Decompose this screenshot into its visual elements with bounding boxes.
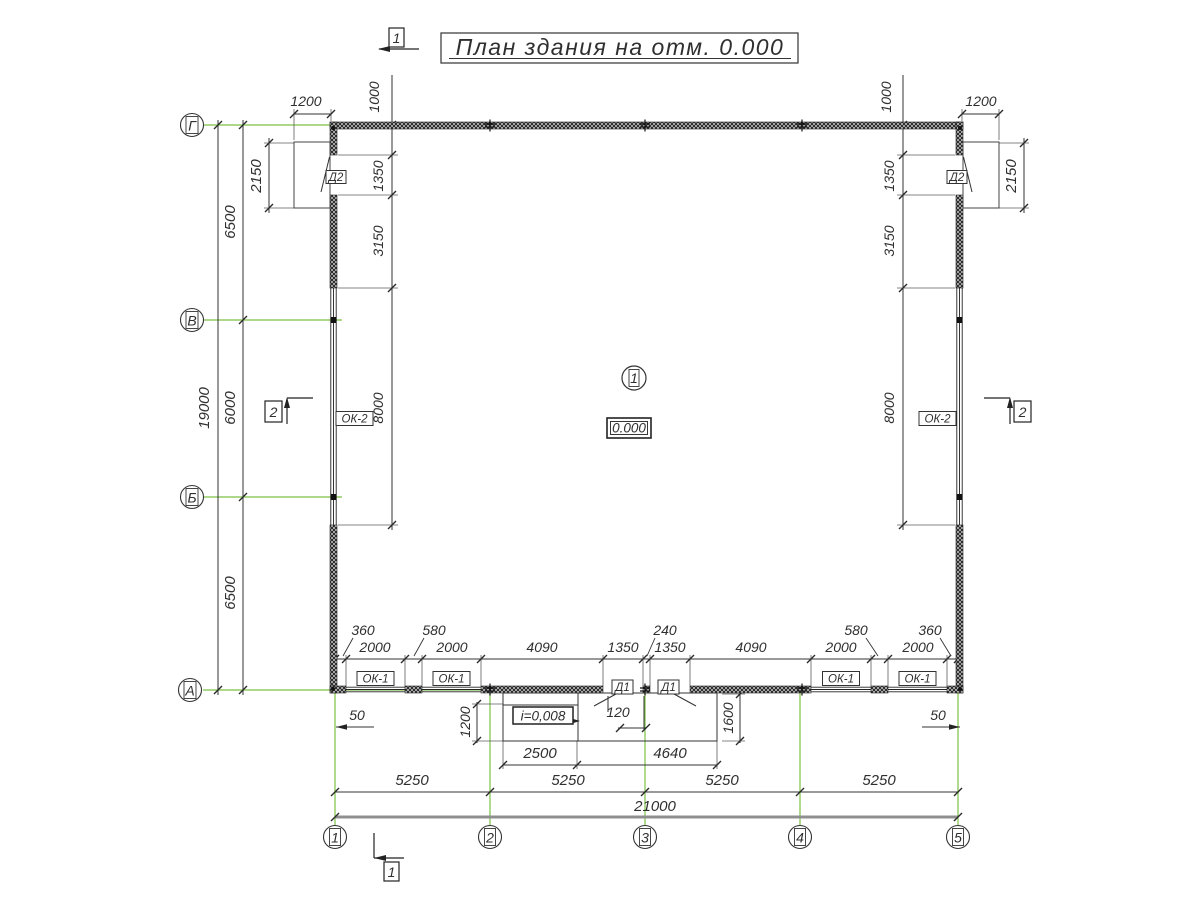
section-marks: 1 1 2 2 xyxy=(265,28,1031,881)
axis-grid-lines xyxy=(203,125,958,825)
slope-tag: i=0,008 xyxy=(513,707,573,724)
dim-b0: 360 xyxy=(351,622,375,638)
dim-span-vb: 6000 xyxy=(222,391,239,425)
dim-b7: 1350 xyxy=(654,639,685,655)
axis-bubble-a: А xyxy=(179,679,202,702)
dim-overall-width: 21000 xyxy=(633,798,676,815)
dim-off-50-r: 50 xyxy=(930,707,946,723)
door-d1-right-leader xyxy=(674,694,696,706)
dim-b1: 2000 xyxy=(358,639,390,655)
dim-s34: 5250 xyxy=(705,772,739,789)
fixation-crosses xyxy=(485,120,807,696)
dim-s45: 5250 xyxy=(862,772,896,789)
axis-bubble-3: 3 xyxy=(634,826,657,849)
ok1-label-4: ОК-1 xyxy=(899,672,936,686)
dim-wl-3150: 3150 xyxy=(370,225,386,256)
elevation-value: 0.000 xyxy=(612,421,646,436)
ok1-text-4: ОК-1 xyxy=(905,674,931,686)
axis-5-label: 5 xyxy=(954,830,962,846)
dim-b6: 240 xyxy=(652,622,677,638)
dim-b10: 580 xyxy=(844,622,868,638)
section-2-left-label: 2 xyxy=(269,404,278,420)
dim-ramp-2500: 2500 xyxy=(522,745,557,762)
axis-2-label: 2 xyxy=(485,830,494,846)
dim-s12: 5250 xyxy=(395,772,429,789)
dim-wr-1350: 1350 xyxy=(881,160,897,191)
dim-porch-l-w: 1200 xyxy=(290,93,321,109)
section-1-bottom-label: 1 xyxy=(388,864,396,880)
room-tag: 1 xyxy=(622,366,646,390)
axis-bubbles-bottom: 1 2 3 4 5 xyxy=(324,826,970,849)
ok2-text-right: ОК-2 xyxy=(925,414,952,426)
ok1-label-2: ОК-1 xyxy=(433,672,470,686)
ok1-text-2: ОК-1 xyxy=(439,674,465,686)
ok1-label-3: ОК-1 xyxy=(823,672,860,686)
elevation-tag: 0.000 xyxy=(607,418,651,438)
dim-b12: 360 xyxy=(918,622,942,638)
ok2-label-right: ОК-2 xyxy=(919,412,956,426)
d2-label-right: Д2 xyxy=(947,171,967,185)
extension-lines xyxy=(264,109,1029,769)
wall-top xyxy=(330,122,963,129)
dim-wl-1350: 1350 xyxy=(370,160,386,191)
section-1-bottom: 1 xyxy=(374,833,404,881)
walls xyxy=(330,122,963,693)
axis-bubble-5: 5 xyxy=(947,826,970,849)
ok1-label-1: ОК-1 xyxy=(357,672,394,686)
dim-ramp-4640: 4640 xyxy=(653,745,687,762)
axis-v-label: В xyxy=(187,313,196,329)
dim-span-gv: 6500 xyxy=(222,205,239,239)
axis-b-label: Б xyxy=(187,490,196,506)
axis-wall-marks xyxy=(331,126,963,691)
dim-off-50-l: 50 xyxy=(349,707,365,723)
section-2-left: 2 xyxy=(265,397,313,424)
dim-porch-r-w: 1200 xyxy=(965,93,996,109)
ramp-dimensions: 50 50 1200 1600 120 2500 4640 xyxy=(349,702,946,762)
axis-span-dimensions: 5250 5250 5250 5250 21000 xyxy=(395,772,896,815)
dim-span-ba: 6500 xyxy=(222,576,239,610)
title-text: План здания на отм. 0.000 xyxy=(456,34,785,60)
dim-b9: 2000 xyxy=(824,639,856,655)
d1-label-right: Д1 xyxy=(658,680,679,694)
section-1-top-label: 1 xyxy=(393,30,401,46)
dim-b11: 2000 xyxy=(901,639,933,655)
dim-b8: 4090 xyxy=(735,639,766,655)
left-dimensions: 19000 6500 6000 6500 2150 1200 1000 1350… xyxy=(196,81,386,609)
dim-ramp-1600: 1600 xyxy=(720,702,736,733)
axis-3-label: 3 xyxy=(641,830,649,846)
dim-wl-1000: 1000 xyxy=(366,81,382,112)
dim-wr-1000: 1000 xyxy=(878,81,894,112)
d1-text-left: Д1 xyxy=(613,682,630,694)
dim-b5: 1350 xyxy=(607,639,638,655)
d2-text-right: Д2 xyxy=(948,172,965,184)
dim-s23: 5250 xyxy=(551,772,585,789)
dim-b4: 4090 xyxy=(526,639,557,655)
drawing-title: План здания на отм. 0.000 xyxy=(441,33,798,63)
axis-bubble-g: Г xyxy=(181,114,204,137)
door-leaves xyxy=(321,157,972,730)
dim-wl-8000: 8000 xyxy=(370,392,386,423)
axis-a-label: А xyxy=(184,683,194,699)
porch-right xyxy=(963,142,999,208)
bottom-chain-dimensions: 360 2000 580 2000 4090 1350 240 1350 409… xyxy=(351,622,942,655)
dim-porch-r-len: 2150 xyxy=(1003,159,1020,194)
dim-wr-8000: 8000 xyxy=(881,392,897,423)
dim-b2: 580 xyxy=(422,622,446,638)
dim-b3: 2000 xyxy=(435,639,467,655)
porch-left xyxy=(294,142,330,208)
d1-label-left: Д1 xyxy=(612,680,633,694)
dim-wr-3150: 3150 xyxy=(881,225,897,256)
axis-bubble-b: Б xyxy=(181,486,204,509)
window-ok2-lines xyxy=(331,288,962,525)
axis-bubble-1: 1 xyxy=(324,826,347,849)
ok2-text-left: ОК-2 xyxy=(342,414,369,426)
room-number: 1 xyxy=(630,370,638,386)
axis-1-label: 1 xyxy=(331,830,339,846)
d2-label-left: Д2 xyxy=(326,171,346,185)
section-1-top: 1 xyxy=(378,28,419,52)
dim-overall-height: 19000 xyxy=(196,386,213,428)
ok1-text-3: ОК-1 xyxy=(828,674,854,686)
slope-value: i=0,008 xyxy=(521,709,566,724)
floor-plan-page: 1 1 2 2 ОК-1 ОК-1 xyxy=(0,0,1200,900)
offset-leaders xyxy=(343,638,951,656)
dim-step-120: 120 xyxy=(606,704,630,720)
ok1-text-1: ОК-1 xyxy=(363,674,389,686)
axis-4-label: 4 xyxy=(796,830,804,846)
axis-bubble-v: В xyxy=(181,309,204,332)
dim-ramp-1200: 1200 xyxy=(457,706,473,737)
d2-text-left: Д2 xyxy=(327,172,344,184)
axis-bubble-4: 4 xyxy=(789,826,812,849)
ok2-label-left: ОК-2 xyxy=(336,412,373,426)
axis-bubble-2: 2 xyxy=(479,826,502,849)
section-2-right-label: 2 xyxy=(1018,404,1027,420)
d1-text-right: Д1 xyxy=(659,682,676,694)
section-2-right: 2 xyxy=(984,397,1031,424)
dim-porch-l-len: 2150 xyxy=(248,159,265,194)
floor-plan-drawing: 1 1 2 2 ОК-1 ОК-1 xyxy=(0,0,1200,900)
